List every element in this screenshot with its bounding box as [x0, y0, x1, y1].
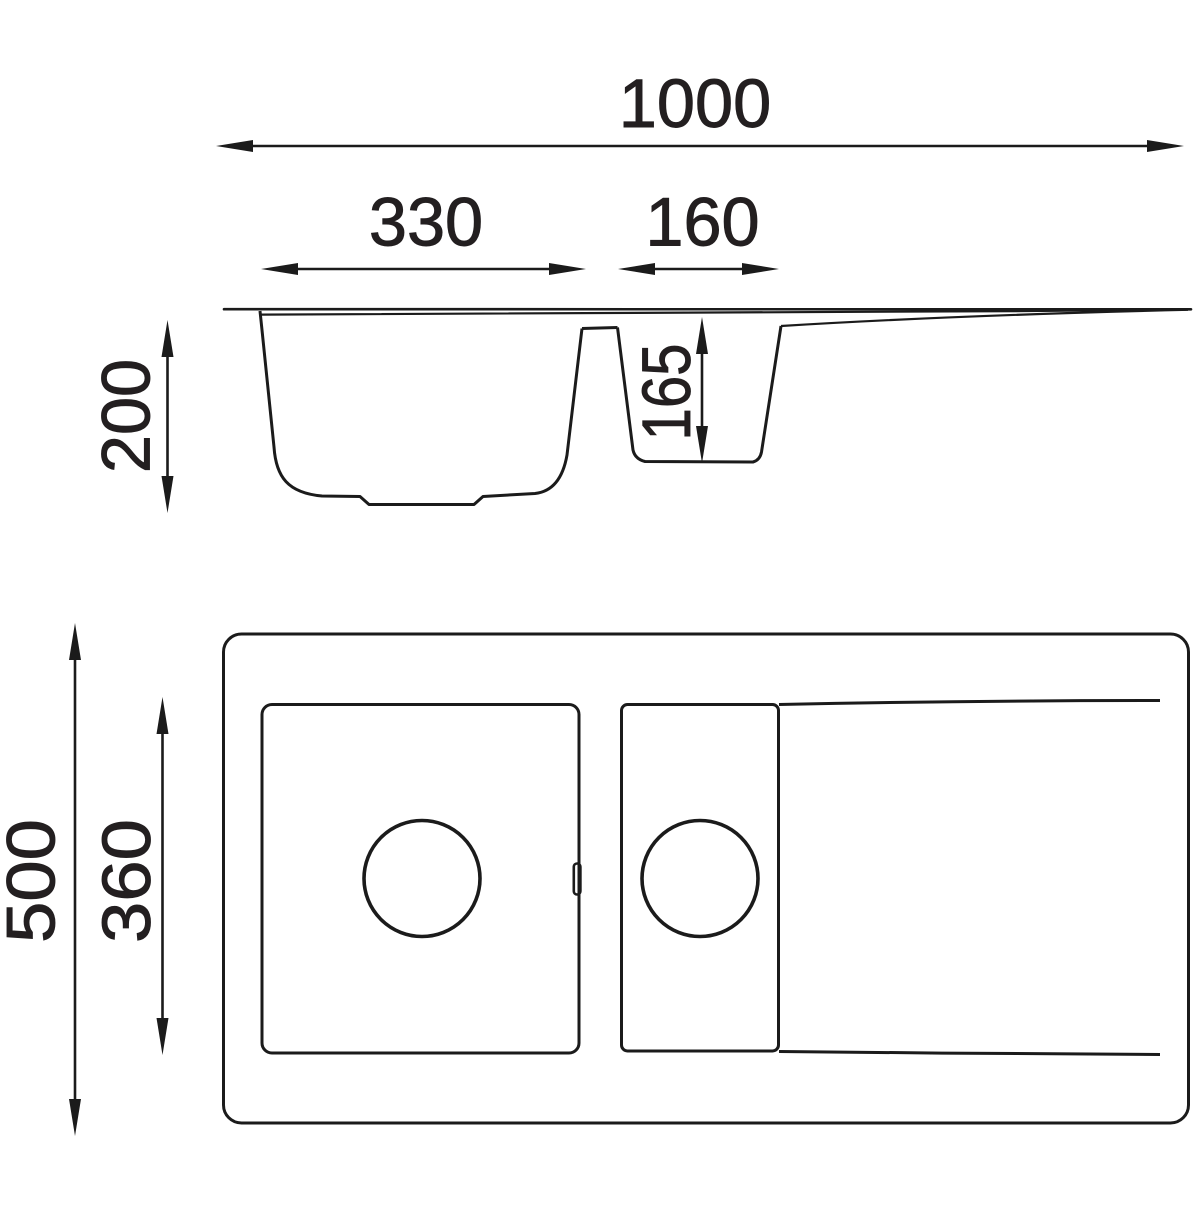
svg-text:500: 500 — [0, 819, 70, 943]
svg-text:1000: 1000 — [619, 65, 771, 142]
svg-text:200: 200 — [88, 359, 165, 473]
svg-text:360: 360 — [88, 819, 165, 943]
svg-text:165: 165 — [628, 344, 705, 441]
svg-text:330: 330 — [369, 184, 483, 261]
svg-text:160: 160 — [645, 184, 759, 261]
